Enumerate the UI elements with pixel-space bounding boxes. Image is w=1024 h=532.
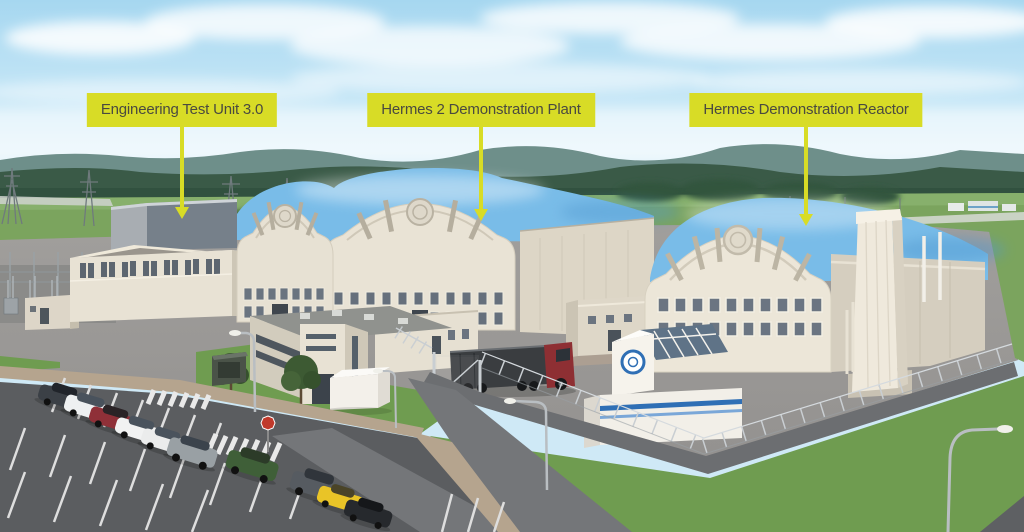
facility-rendering: Engineering Test Unit 3.0 Hermes 2 Demon… [0, 0, 1024, 532]
bus-shelter [212, 352, 248, 386]
etu-gray-block [111, 199, 237, 254]
callout-label-hermes: Hermes Demonstration Reactor [689, 93, 922, 127]
callout-label-hermes2: Hermes 2 Demonstration Plant [367, 93, 595, 127]
scene-illustration [0, 0, 1024, 532]
callout-label-etu: Engineering Test Unit 3.0 [87, 93, 277, 127]
clouds [0, 2, 1024, 160]
